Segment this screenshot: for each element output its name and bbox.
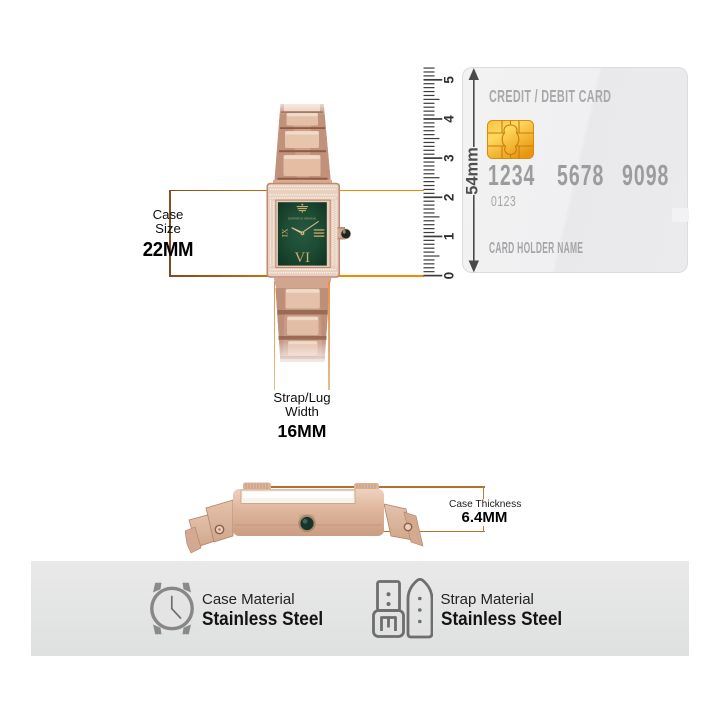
svg-text:4: 4 bbox=[442, 115, 457, 123]
svg-text:VI: VI bbox=[295, 250, 310, 266]
svg-text:2: 2 bbox=[442, 194, 457, 202]
svg-text:0: 0 bbox=[442, 272, 457, 280]
svg-text:3: 3 bbox=[442, 154, 457, 162]
svg-text:5: 5 bbox=[442, 76, 457, 84]
svg-text:EMPORIO ARMANI: EMPORIO ARMANI bbox=[288, 216, 316, 220]
svg-text:1: 1 bbox=[442, 232, 457, 240]
svg-text:IX: IX bbox=[279, 228, 289, 237]
